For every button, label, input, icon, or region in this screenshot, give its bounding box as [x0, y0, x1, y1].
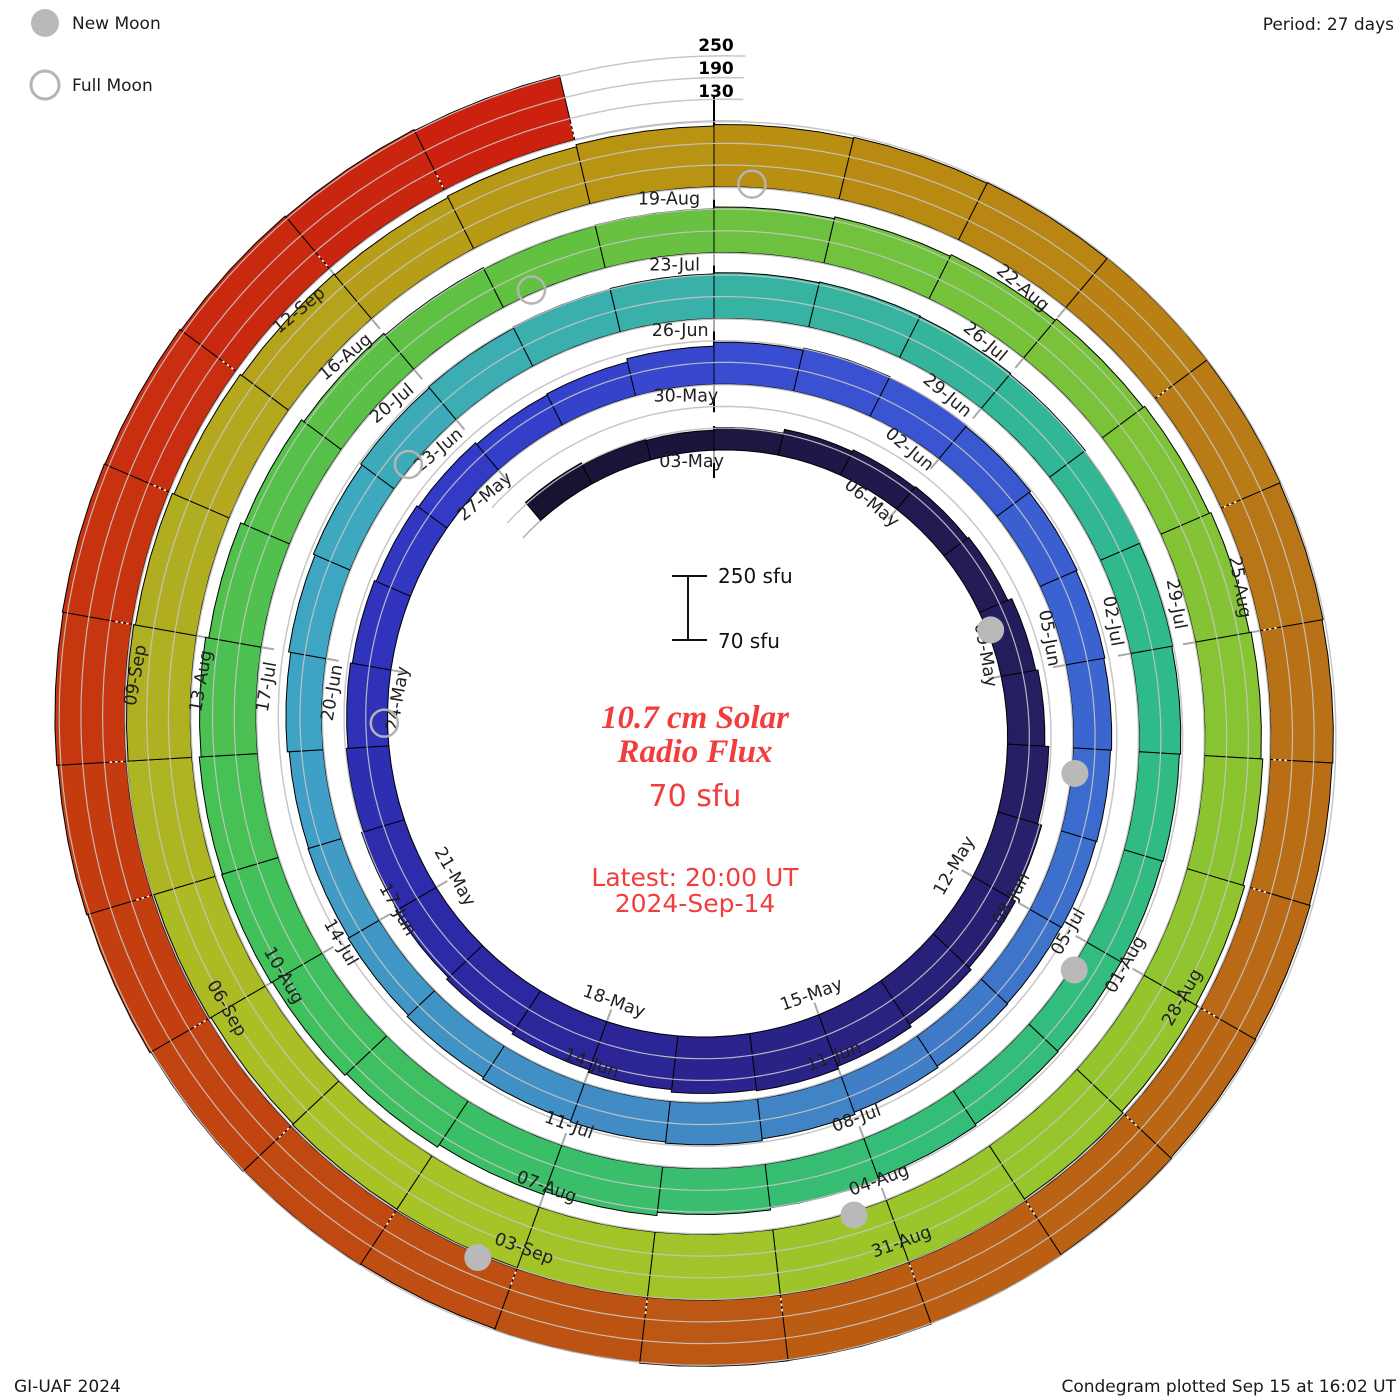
chart-title-line1: 10.7 cm Solar — [601, 700, 790, 736]
radial-label-250: 250 — [698, 36, 734, 56]
latest-date-label: 2024-Sep-14 — [615, 889, 776, 918]
radial-label-130: 130 — [698, 82, 734, 102]
center-annotations: 10.7 cm Solar Radio Flux 70 sfu Latest: … — [591, 700, 799, 918]
baseline-value-label: 70 sfu — [649, 779, 742, 814]
scale-bar-bottom-label: 70 sfu — [718, 629, 780, 653]
date-label-30-May: 30-May — [654, 386, 719, 406]
flux-scale-bar — [672, 576, 707, 640]
new-moon-marker-03-Sep — [464, 1244, 491, 1271]
new-moon-marker-08-May — [977, 616, 1004, 643]
new-moon-marker-04-Aug — [840, 1201, 867, 1228]
condegram-chart: 03-May06-May09-May12-May15-May18-May21-M… — [0, 0, 1400, 1400]
new-moon-marker-05-Jul — [1061, 956, 1088, 983]
new-moon-label: New Moon — [72, 14, 161, 34]
plotted-label: Condegram plotted Sep 15 at 16:02 UT — [1061, 1377, 1396, 1397]
period-label: Period: 27 days — [1263, 15, 1394, 35]
latest-time-label: Latest: 20:00 UT — [591, 863, 799, 892]
condegram-page: 03-May06-May09-May12-May15-May18-May21-M… — [0, 0, 1400, 1400]
new-moon-marker-06-Jun — [1061, 760, 1088, 787]
date-label-23-Jul: 23-Jul — [649, 255, 700, 275]
scale-bar-top-label: 250 sfu — [718, 564, 793, 588]
date-label-26-Jun: 26-Jun — [652, 321, 709, 341]
chart-title-line2: Radio Flux — [617, 734, 773, 770]
radial-scale-labels: 250 190 130 — [698, 36, 734, 102]
credit-label: GI-UAF 2024 — [14, 1377, 121, 1397]
radial-label-190: 190 — [698, 59, 734, 79]
date-label-19-Aug: 19-Aug — [638, 190, 700, 210]
new-moon-icon — [31, 9, 59, 37]
moon-legend: New Moon Full Moon — [31, 9, 161, 99]
full-moon-label: Full Moon — [72, 76, 153, 96]
full-moon-icon — [31, 71, 59, 99]
date-label-03-May: 03-May — [659, 452, 724, 472]
